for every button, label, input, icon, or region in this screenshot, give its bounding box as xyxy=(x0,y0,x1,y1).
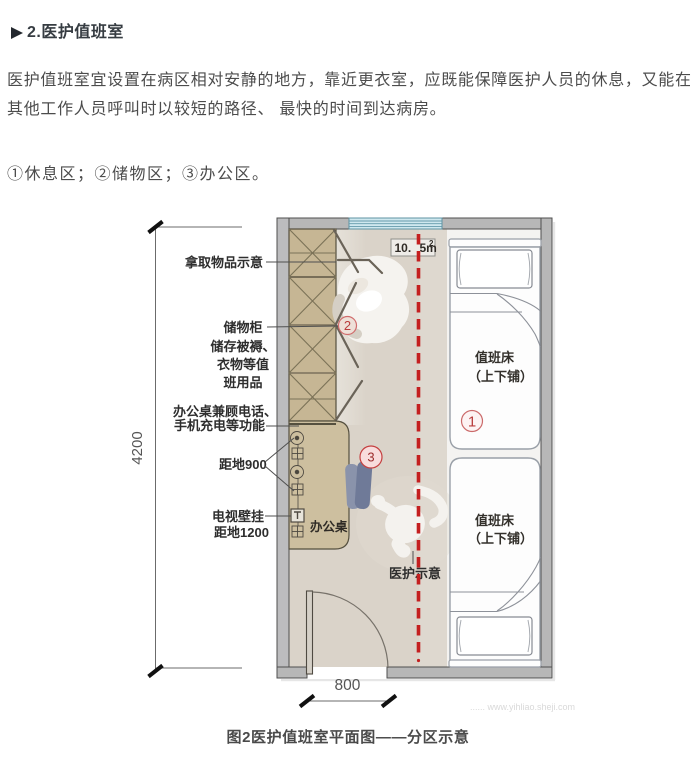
svg-text:办公桌兼顾电话、: 办公桌兼顾电话、 xyxy=(173,404,277,419)
svg-text:值班床: 值班床 xyxy=(475,350,515,365)
svg-text:手机充电等功能: 手机充电等功能 xyxy=(174,418,265,433)
svg-text:医护示意: 医护示意 xyxy=(389,566,441,581)
svg-text:办公桌: 办公桌 xyxy=(310,519,348,534)
svg-text:衣物等值: 衣物等值 xyxy=(217,357,269,372)
svg-text:电视壁挂: 电视壁挂 xyxy=(212,509,264,524)
svg-text:拿取物品示意: 拿取物品示意 xyxy=(184,255,263,270)
svg-text:班用品: 班用品 xyxy=(223,375,262,390)
svg-text:10.: 10. xyxy=(395,241,412,255)
svg-text:2: 2 xyxy=(344,318,351,333)
svg-text:1: 1 xyxy=(468,414,476,431)
svg-text:800: 800 xyxy=(335,677,361,694)
svg-text:储存被褥、: 储存被褥、 xyxy=(209,339,275,354)
svg-text:3: 3 xyxy=(367,450,374,465)
svg-text:2: 2 xyxy=(429,239,434,248)
svg-text:储物柜: 储物柜 xyxy=(222,320,262,335)
svg-text:4200: 4200 xyxy=(129,431,146,464)
svg-text:（上下铺）: （上下铺） xyxy=(468,369,533,384)
svg-text:（上下铺）: （上下铺） xyxy=(468,531,533,546)
svg-text:距地1200: 距地1200 xyxy=(214,525,269,540)
svg-text:距地900: 距地900 xyxy=(219,457,267,472)
svg-text:值班床: 值班床 xyxy=(475,513,515,528)
svg-text:...... www.yihliao.sheji.com: ...... www.yihliao.sheji.com xyxy=(470,702,575,712)
